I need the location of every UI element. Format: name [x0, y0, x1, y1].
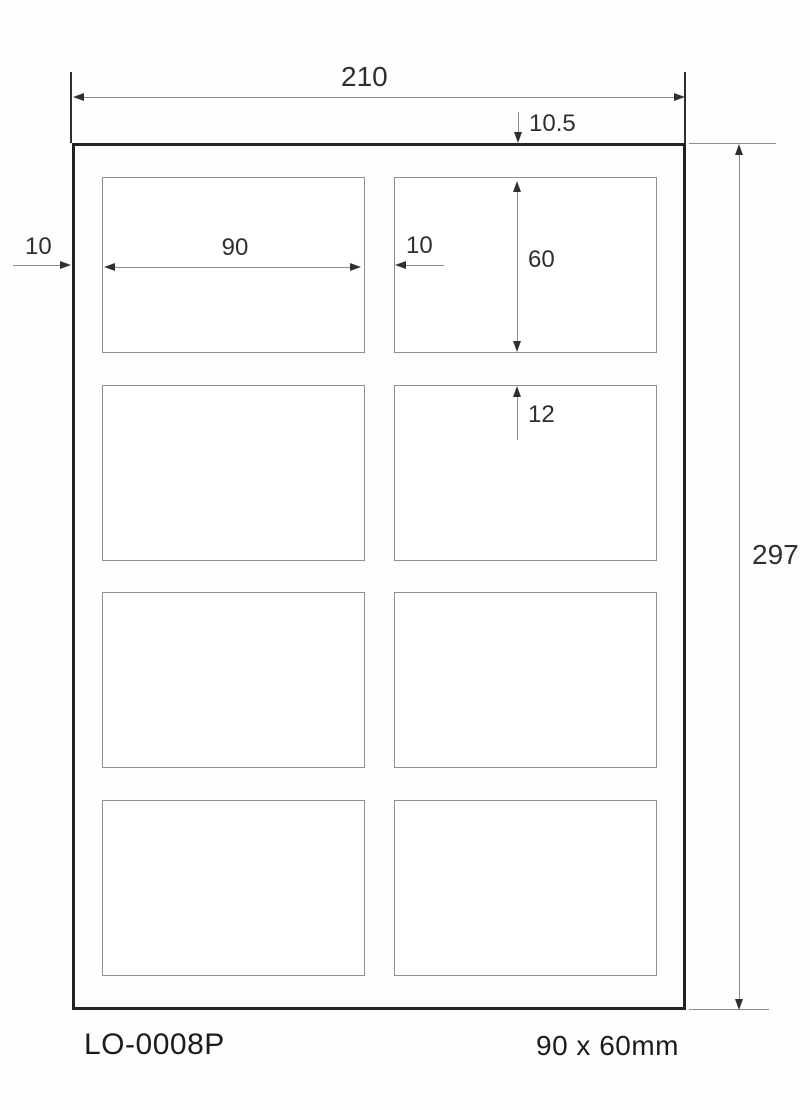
dim-label-column-gap: 10 [406, 234, 433, 258]
dim-line-label-width [114, 267, 351, 268]
arrowhead-right [60, 261, 71, 269]
dim-label-label-height: 60 [528, 248, 555, 272]
extension-line-bottom-right [689, 1009, 769, 1010]
extension-line-top-right [689, 143, 776, 144]
dim-line-sheet-height [739, 153, 740, 1001]
label-cell-r3c1 [102, 592, 365, 768]
arrowhead-right [674, 93, 685, 101]
dim-line-top-margin [518, 112, 519, 134]
arrowhead-up [513, 181, 521, 192]
label-sheet-diagram: 210 10.5 10 90 10 60 12 297 LO-0008P 90 … [0, 0, 810, 1110]
dim-label-label-width: 90 [210, 236, 260, 260]
arrowhead-up [735, 144, 743, 155]
dim-label-sheet-height: 297 [752, 541, 799, 569]
extension-line-left [70, 72, 72, 143]
dim-label-left-margin: 10 [25, 235, 52, 259]
product-code: LO-0008P [84, 1030, 225, 1060]
arrowhead-up [513, 386, 521, 397]
arrowhead-down [514, 132, 522, 143]
dim-line-row-gap [517, 395, 518, 440]
arrowhead-left [395, 261, 406, 269]
label-cell-r3c2 [394, 592, 657, 768]
dim-line-label-height [517, 190, 518, 343]
dim-line-left-margin [13, 265, 62, 266]
dim-label-row-gap: 12 [528, 403, 555, 427]
label-cell-r2c2 [394, 385, 657, 561]
arrowhead-right [350, 263, 361, 271]
arrowhead-left [104, 263, 115, 271]
dim-line-column-gap [406, 265, 444, 266]
dim-label-sheet-width: 210 [341, 63, 388, 91]
dim-label-top-margin: 10.5 [529, 112, 576, 136]
extension-line-right [684, 72, 686, 143]
arrowhead-down [735, 999, 743, 1010]
label-cell-r4c2 [394, 800, 657, 976]
label-cell-r1c1 [102, 177, 365, 353]
dim-line-sheet-width [78, 97, 678, 98]
label-cell-r2c1 [102, 385, 365, 561]
label-cell-r4c1 [102, 800, 365, 976]
arrowhead-down [513, 341, 521, 352]
label-format: 90 x 60mm [536, 1032, 679, 1060]
arrowhead-left [73, 93, 84, 101]
